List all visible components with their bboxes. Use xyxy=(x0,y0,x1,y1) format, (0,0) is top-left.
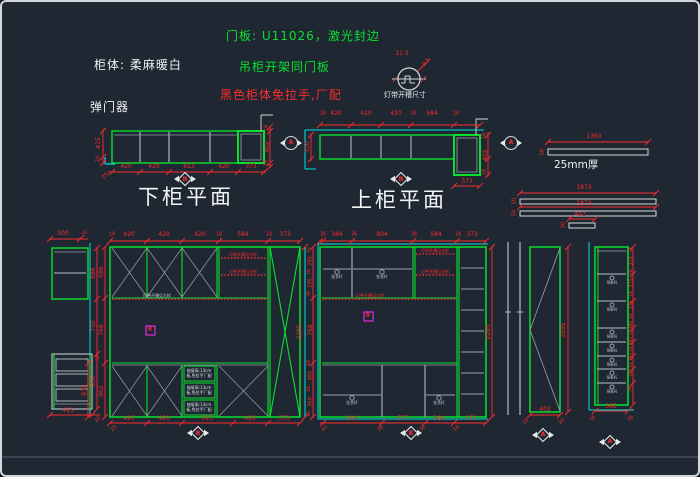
dim-label: 1873 xyxy=(576,201,591,207)
dim-label: 层板托 xyxy=(607,349,618,353)
dim-label: 584 xyxy=(237,232,248,238)
dim-label: 373 xyxy=(278,416,289,422)
dim-label: 420 xyxy=(123,232,134,238)
dim-label: 18 xyxy=(265,125,270,131)
dim-label: 18 xyxy=(629,330,633,335)
dim-label: 层板托 xyxy=(607,308,618,312)
dim-label: 420 xyxy=(194,232,205,238)
dim-label: 768 xyxy=(308,324,314,335)
dim-label: 584 xyxy=(430,232,441,238)
dim-label: 36 xyxy=(308,291,313,297)
dim-label: 挂衣杆 xyxy=(331,275,342,279)
tiny-label: 灯带开槽见大样 xyxy=(229,270,257,274)
dim-label: 18 xyxy=(266,233,272,238)
dim-label: 420 xyxy=(244,416,255,422)
dim-label: 373 xyxy=(466,232,477,238)
dim-label: 18 xyxy=(265,160,270,166)
dim-label: 420 xyxy=(360,111,371,117)
dim-label: 577 xyxy=(397,416,408,422)
tiny-label: 灯带开槽见大样 xyxy=(421,270,449,274)
dim-label: 415 xyxy=(96,137,102,148)
dim-label: 420 xyxy=(123,416,134,422)
dim-label: 18 xyxy=(629,346,633,351)
tiny-label: 灯带开槽见大样 xyxy=(229,253,257,257)
dim-label: 420 xyxy=(218,164,229,170)
tiny-label: 灯带开槽见大样 xyxy=(143,294,171,298)
dim-label: 挂衣杆 xyxy=(376,275,387,279)
cad-canvas: 门板: U11026，激光封边 柜体: 柔麻暖白 吊柜开架同门板 黑色柜体免拉手… xyxy=(0,0,700,477)
handle-note: 黑色柜体免拉手,厂配 xyxy=(220,86,342,103)
dim-label: 374 xyxy=(630,256,635,266)
dim-label: 层板托 xyxy=(607,376,618,380)
dim-label: 18 xyxy=(308,269,313,275)
marker-letter: B xyxy=(399,176,404,183)
dim-label: 300 xyxy=(57,231,68,237)
dim-label: 804 xyxy=(376,232,387,238)
tiny-label: 板,免拉手厂配 xyxy=(186,374,211,378)
dim-label: 850 xyxy=(91,375,97,386)
dim-label: 180 xyxy=(630,369,635,378)
cabinet-body-note: 柜体: 柔麻暖白 xyxy=(94,56,182,73)
dim-label: 18 xyxy=(109,233,115,238)
marker-letter: A xyxy=(289,140,294,146)
dim-label: 366 xyxy=(605,404,616,410)
dim-label: 373 xyxy=(465,416,476,422)
dim-label: 420 xyxy=(120,164,131,170)
marker-letter: B xyxy=(183,176,188,183)
dim-label: 750 xyxy=(91,320,97,331)
dim-label: 402 xyxy=(483,149,489,160)
dim-label: 18 xyxy=(629,291,633,296)
dim-label: 18 xyxy=(216,233,222,238)
dim-label: 180 xyxy=(630,337,635,346)
marker-letter: A xyxy=(541,432,546,438)
dim-label: 2285 xyxy=(486,324,492,339)
dim-label: 1360 xyxy=(586,134,601,140)
dim-label: B xyxy=(148,327,152,333)
dim-label: 804 xyxy=(346,416,357,422)
dim-label: 295 xyxy=(309,256,314,266)
dim-label: 18 xyxy=(410,112,416,117)
dim-label: 768 xyxy=(99,324,105,335)
dim-label: 18 xyxy=(483,133,488,139)
marker-letter: A xyxy=(608,439,613,445)
tiny-label: 灯带开槽见大样 xyxy=(356,294,384,298)
dim-label: 420 xyxy=(158,416,169,422)
marker-letter: A xyxy=(509,140,514,146)
dim-label: 420 xyxy=(330,111,341,117)
dim-label: 373 xyxy=(461,179,472,185)
dim-label: 36 xyxy=(351,233,357,238)
lower-plan-title: 下柜平面 xyxy=(138,181,234,211)
dim-label: 373 xyxy=(245,164,256,170)
dim-label: 400 xyxy=(309,371,314,381)
dim-label: 50 xyxy=(513,210,518,216)
dim-label: 50 xyxy=(513,198,518,204)
dim-label: 18 xyxy=(308,386,313,392)
dim-label: 373 xyxy=(279,232,290,238)
dim-label: 2285 xyxy=(561,322,567,337)
dim-label: 20 xyxy=(96,156,102,163)
dim-label: 420 xyxy=(148,164,159,170)
dim-label: 613 xyxy=(201,416,212,422)
marker-letter: B xyxy=(409,430,414,437)
dim-label: 686 xyxy=(91,267,97,278)
dim-label: 420 xyxy=(158,232,169,238)
dim-label: 420 xyxy=(390,111,401,117)
dim-label: 802 xyxy=(99,385,105,396)
dim-label: 18 xyxy=(629,362,633,367)
dim-label: 18 xyxy=(629,247,633,252)
dim-label: 18 xyxy=(483,169,488,175)
dim-label: 402 xyxy=(265,141,271,152)
door-panel-note: 门板: U11026，激光封边 xyxy=(226,27,380,44)
dim-label: 50 xyxy=(562,222,567,228)
dim-label: 挂衣杆 xyxy=(433,401,444,405)
dim-label: 层板托 xyxy=(607,390,618,394)
dim-label: 36 xyxy=(320,233,326,238)
dim-label: 295 xyxy=(309,278,314,288)
light-groove-label: 灯带开槽尺寸 xyxy=(384,90,426,100)
dim-label: 层板托 xyxy=(607,281,618,285)
dim-label: 36 xyxy=(411,233,417,238)
dim-label: 402 xyxy=(574,212,585,218)
dim-label: 层板托 xyxy=(607,363,618,367)
dim-label: 50 xyxy=(541,149,546,155)
dim-label: 2285 xyxy=(297,324,303,339)
dim-label: 18 xyxy=(629,313,633,318)
dim-label: 18 xyxy=(320,112,326,117)
marker-letter: B xyxy=(196,430,201,437)
dim-label: 18 xyxy=(453,112,459,117)
dim-label: 686 xyxy=(99,266,105,277)
drawing-linework xyxy=(2,2,700,477)
dim-label: 375 xyxy=(630,300,635,310)
dim-label: 320 xyxy=(305,141,311,152)
dim-label: B xyxy=(366,313,370,319)
dim-label: 30 xyxy=(97,355,102,361)
dim-label: 11.5 xyxy=(395,51,408,57)
thickness-label: 25mm厚 xyxy=(554,157,598,172)
dim-label: 挂衣杆 xyxy=(346,401,357,405)
dim-label: 832 xyxy=(82,384,88,395)
dim-label: 415 xyxy=(62,408,73,414)
dim-label: 384 xyxy=(433,416,444,422)
damper-label: 弹门器 xyxy=(90,98,129,115)
dim-label: 18 xyxy=(308,360,313,366)
dim-label: 613 xyxy=(183,164,194,170)
tiny-label: 板,免拉手厂配 xyxy=(186,408,211,412)
dim-label: 360 xyxy=(309,397,314,407)
dim-label: 18 xyxy=(629,269,633,274)
dim-label: 402 xyxy=(539,407,550,413)
dim-label: 层板托 xyxy=(607,335,618,339)
upper-plan-title: 上柜平面 xyxy=(351,184,447,214)
dim-label: 1873 xyxy=(576,185,591,191)
tiny-label: 灯带开槽见大样 xyxy=(421,249,449,253)
dim-label: 180 xyxy=(630,353,635,362)
dim-label: 584 xyxy=(426,111,437,117)
hanging-note: 吊柜开架同门板 xyxy=(239,58,330,75)
dim-label: 68 xyxy=(629,385,634,391)
dim-label: 36 xyxy=(308,411,313,417)
dim-label: 43 xyxy=(308,247,313,253)
dim-label: 384 xyxy=(331,232,342,238)
dim-label: 18 xyxy=(455,233,461,238)
tiny-label: 板,免拉手厂配 xyxy=(186,391,211,395)
dim-label: 375 xyxy=(630,278,635,288)
dim-label: 180 xyxy=(630,321,635,330)
